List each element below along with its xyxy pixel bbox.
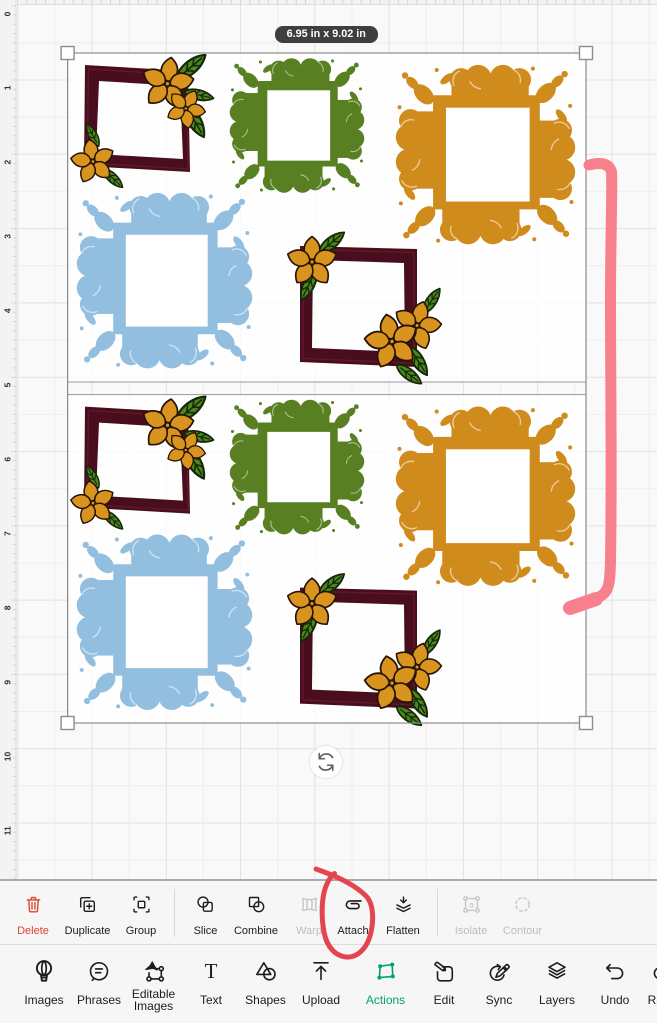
svg-text:3: 3: [3, 234, 13, 239]
svg-text:2: 2: [3, 159, 13, 164]
svg-text:4: 4: [3, 308, 13, 313]
svg-text:7: 7: [3, 531, 13, 536]
svg-text:8: 8: [3, 605, 13, 610]
svg-text:9: 9: [3, 680, 13, 685]
svg-text:0: 0: [3, 11, 13, 16]
svg-text:a: a: [469, 900, 474, 910]
svg-text:11: 11: [3, 826, 13, 835]
svg-text:5: 5: [3, 382, 13, 387]
svg-text:T: T: [205, 959, 218, 983]
svg-text:6: 6: [3, 457, 13, 462]
svg-text:10: 10: [3, 752, 13, 762]
svg-text:1: 1: [3, 85, 13, 90]
